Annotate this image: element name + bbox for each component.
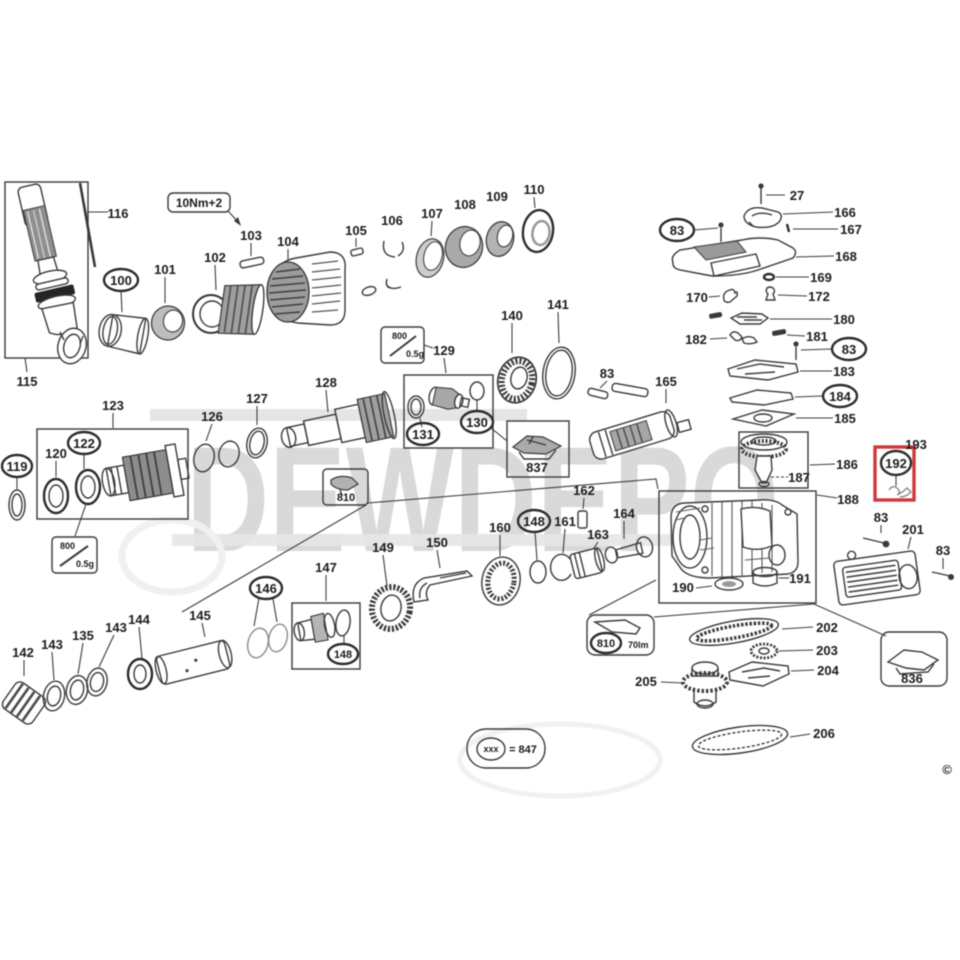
svg-text:205: 205: [635, 674, 657, 689]
svg-text:83: 83: [670, 223, 684, 238]
svg-text:104: 104: [277, 234, 299, 249]
svg-text:203: 203: [816, 643, 838, 658]
svg-text:150: 150: [426, 535, 448, 550]
svg-text:122: 122: [73, 436, 95, 451]
svg-text:201: 201: [902, 522, 924, 537]
svg-text:146: 146: [255, 581, 277, 596]
svg-text:10Nm+2: 10Nm+2: [176, 196, 223, 210]
svg-text:142: 142: [12, 645, 34, 660]
svg-text:116: 116: [108, 206, 129, 221]
svg-text:145: 145: [189, 608, 211, 623]
svg-text:810: 810: [337, 492, 355, 504]
svg-text:110: 110: [524, 182, 545, 197]
svg-text:xxx: xxx: [483, 744, 498, 754]
svg-text:190: 190: [672, 580, 694, 595]
svg-text:180: 180: [833, 312, 855, 327]
svg-text:120: 120: [45, 446, 67, 461]
svg-text:206: 206: [813, 726, 835, 741]
svg-text:144: 144: [128, 612, 150, 627]
svg-text:123: 123: [102, 398, 124, 413]
svg-text:108: 108: [454, 197, 476, 212]
svg-text:186: 186: [836, 457, 858, 472]
svg-text:127: 127: [246, 391, 268, 406]
svg-text:126: 126: [201, 409, 223, 424]
svg-text:182: 182: [685, 332, 707, 347]
svg-text:107: 107: [421, 206, 443, 221]
svg-text:836: 836: [901, 671, 923, 686]
svg-text:129: 129: [433, 343, 455, 358]
svg-text:= 847: = 847: [509, 744, 537, 756]
svg-text:181: 181: [806, 329, 828, 344]
svg-text:170: 170: [686, 290, 708, 305]
svg-text:204: 204: [817, 663, 839, 678]
svg-text:192: 192: [885, 456, 907, 471]
svg-text:172: 172: [808, 289, 830, 304]
svg-text:0.5g: 0.5g: [76, 559, 94, 569]
svg-text:83: 83: [936, 543, 950, 558]
svg-text:149: 149: [372, 540, 394, 555]
svg-text:185: 185: [834, 411, 856, 426]
svg-text:147: 147: [315, 560, 337, 575]
svg-text:800: 800: [60, 541, 75, 551]
svg-text:130: 130: [466, 415, 488, 430]
svg-text:27: 27: [790, 188, 804, 203]
svg-text:105: 105: [345, 223, 367, 238]
svg-text:141: 141: [547, 297, 569, 312]
svg-text:169: 169: [810, 270, 832, 285]
svg-text:109: 109: [486, 189, 508, 204]
svg-text:131: 131: [412, 427, 434, 442]
svg-text:143: 143: [105, 620, 127, 635]
svg-text:800: 800: [392, 331, 407, 341]
svg-text:0.5g: 0.5g: [406, 349, 424, 359]
svg-text:115: 115: [17, 374, 38, 389]
svg-text:193: 193: [905, 437, 927, 452]
svg-text:70lm: 70lm: [628, 640, 649, 650]
svg-text:140: 140: [501, 308, 523, 323]
svg-text:164: 164: [613, 506, 635, 521]
svg-text:119: 119: [7, 459, 28, 474]
svg-text:102: 102: [204, 250, 226, 265]
svg-text:187: 187: [788, 470, 810, 485]
svg-text:83: 83: [842, 342, 856, 357]
svg-text:103: 103: [240, 228, 262, 243]
svg-text:191: 191: [789, 571, 811, 586]
svg-text:148: 148: [523, 514, 545, 529]
svg-text:161: 161: [554, 514, 576, 529]
svg-text:160: 160: [489, 520, 511, 535]
svg-text:100: 100: [110, 273, 132, 288]
svg-text:135: 135: [72, 628, 94, 643]
svg-text:128: 128: [315, 375, 337, 390]
svg-text:83: 83: [600, 366, 614, 381]
svg-text:810: 810: [597, 638, 615, 650]
svg-text:163: 163: [587, 527, 609, 542]
svg-text:101: 101: [154, 262, 176, 277]
svg-text:167: 167: [840, 222, 862, 237]
svg-text:162: 162: [573, 483, 595, 498]
svg-text:184: 184: [829, 389, 851, 404]
svg-text:148: 148: [334, 649, 352, 661]
svg-text:183: 183: [833, 364, 855, 379]
svg-text:83: 83: [874, 510, 888, 525]
svg-text:188: 188: [837, 492, 859, 507]
svg-text:837: 837: [526, 460, 548, 475]
svg-text:168: 168: [835, 249, 857, 264]
svg-text:©: ©: [942, 762, 952, 777]
svg-text:165: 165: [655, 374, 677, 389]
svg-text:106: 106: [381, 213, 403, 228]
svg-text:166: 166: [834, 205, 856, 220]
svg-text:143: 143: [41, 637, 63, 652]
svg-text:202: 202: [816, 620, 838, 635]
